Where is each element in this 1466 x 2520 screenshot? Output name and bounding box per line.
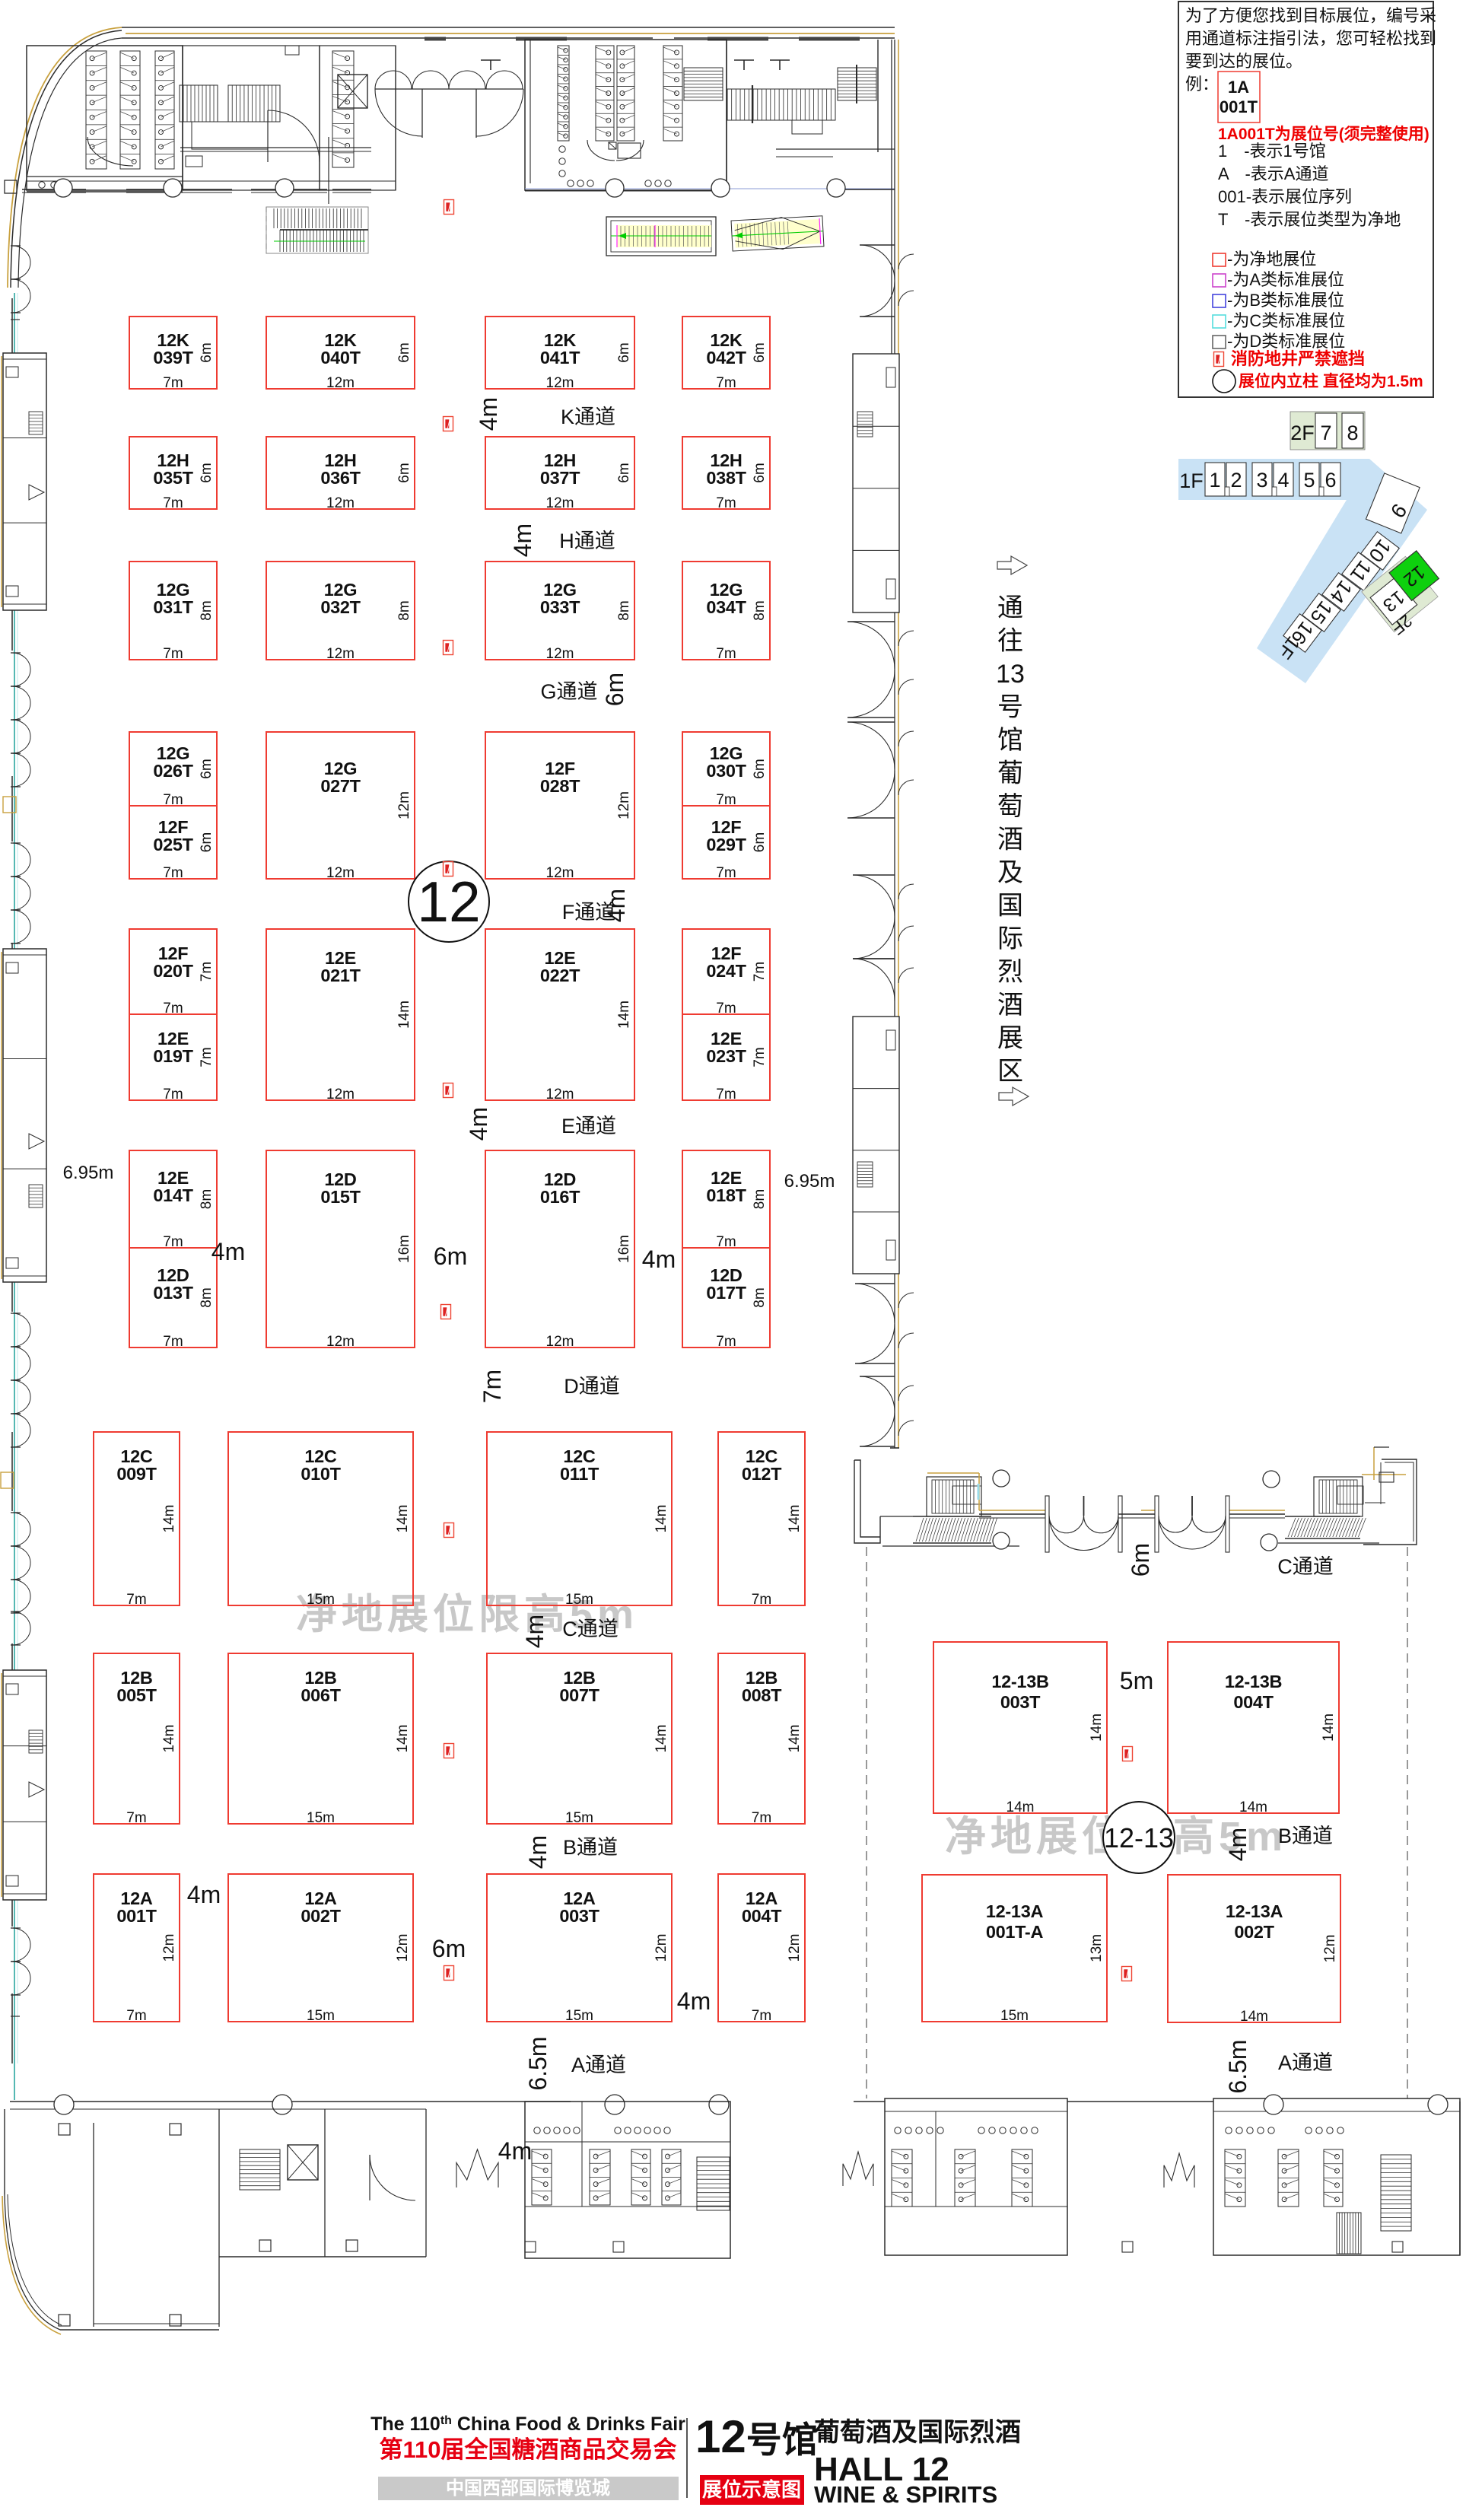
svg-text:消防地井严禁遮挡: 消防地井严禁遮挡 [1231,349,1365,368]
svg-text:12m: 12m [653,1934,669,1962]
svg-text:039T: 039T [153,348,193,367]
svg-text:6m: 6m [616,342,632,362]
svg-text:7m: 7m [163,1334,183,1350]
svg-text:G通道: G通道 [540,680,597,703]
svg-text:032T: 032T [320,597,361,617]
svg-text:021T: 021T [320,966,361,985]
svg-text:12m: 12m [546,1334,574,1350]
svg-text:T -表示展位类型为净地: T -表示展位类型为净地 [1218,210,1401,229]
svg-text:展位内立柱 直径均为1.5m: 展位内立柱 直径均为1.5m [1239,372,1423,390]
svg-text:7m: 7m [752,1810,771,1826]
svg-text:025T: 025T [153,835,193,854]
svg-text:022T: 022T [540,966,580,985]
svg-text:-为D类标准展位: -为D类标准展位 [1227,332,1345,351]
svg-text:029T: 029T [706,835,746,854]
svg-text:14m: 14m [161,1725,177,1753]
svg-text:8m: 8m [616,600,632,620]
svg-text:7m: 7m [716,1087,736,1102]
svg-text:C通道: C通道 [562,1618,619,1640]
svg-text:区: 区 [997,1057,1023,1086]
svg-text:号: 号 [997,693,1023,722]
svg-text:酒: 酒 [997,991,1023,1020]
svg-text:034T: 034T [706,597,746,617]
svg-text:7m: 7m [163,1087,183,1102]
svg-text:7m: 7m [199,1047,215,1067]
svg-text:038T: 038T [706,468,746,488]
svg-text:14m: 14m [616,1001,632,1029]
svg-text:4m: 4m [465,1107,492,1141]
svg-text:040T: 040T [320,348,361,367]
svg-text:14m: 14m [395,1725,411,1753]
svg-text:6m: 6m [616,463,632,482]
svg-text:028T: 028T [540,776,580,796]
svg-text:14m: 14m [1240,2009,1268,2025]
svg-text:5m: 5m [1120,1667,1153,1694]
svg-text:4m: 4m [524,1835,552,1869]
svg-text:12-13A: 12-13A [1226,1901,1283,1921]
svg-text:15m: 15m [307,2008,335,2024]
svg-text:011T: 011T [560,1464,599,1484]
svg-text:12号馆: 12号馆 [695,2411,818,2462]
svg-text:12m: 12m [326,375,355,391]
svg-text:中国西部国际博览城: 中国西部国际博览城 [446,2477,610,2499]
svg-text:4: 4 [1277,469,1289,492]
svg-text:3: 3 [1256,469,1267,492]
svg-text:B通道: B通道 [563,1836,618,1859]
svg-text:15m: 15m [565,1592,593,1608]
svg-text:001-表示展位序列: 001-表示展位序列 [1218,187,1352,206]
svg-text:-为净地展位: -为净地展位 [1227,250,1316,269]
svg-text:15m: 15m [565,1810,593,1826]
svg-text:5: 5 [1303,469,1315,492]
svg-text:035T: 035T [153,468,193,488]
svg-text:030T: 030T [706,761,746,781]
svg-text:033T: 033T [540,597,580,617]
svg-text:B通道: B通道 [1278,1825,1333,1847]
svg-text:4m: 4m [187,1881,221,1908]
svg-text:009T: 009T [116,1464,157,1484]
svg-text:14m: 14m [653,1725,669,1753]
svg-text:12-13A: 12-13A [986,1901,1044,1921]
svg-text:002T: 002T [301,1906,341,1926]
svg-text:14m: 14m [1006,1799,1035,1815]
svg-text:12-13B: 12-13B [1225,1672,1282,1691]
svg-text:6m: 6m [396,342,412,362]
svg-text:6.95m: 6.95m [784,1171,835,1192]
svg-text:041T: 041T [540,348,580,367]
svg-text:14m: 14m [396,1001,412,1029]
svg-text:12m: 12m [396,791,412,819]
svg-text:031T: 031T [153,597,193,617]
svg-text:13: 13 [996,660,1025,689]
svg-text:6m: 6m [199,759,215,778]
svg-text:005T: 005T [116,1685,157,1705]
svg-text:013T: 013T [153,1283,193,1303]
svg-text:12m: 12m [546,495,574,511]
svg-text:14m: 14m [787,1505,803,1533]
svg-text:The 110th China Food & Drinks: The 110th China Food & Drinks Fair [370,2413,685,2435]
svg-text:002T: 002T [1234,1922,1274,1942]
svg-text:1F: 1F [1179,469,1204,492]
svg-text:1A001T为展位号(须完整使用): 1A001T为展位号(须完整使用) [1218,125,1429,143]
svg-text:14m: 14m [1321,1713,1337,1742]
svg-text:7m: 7m [716,1334,736,1350]
svg-text:7m: 7m [126,1592,146,1608]
svg-text:6: 6 [1324,469,1336,492]
svg-text:A通道: A通道 [1278,2051,1333,2074]
svg-text:008T: 008T [742,1685,782,1705]
svg-text:004T: 004T [1233,1692,1274,1712]
svg-text:6m: 6m [199,342,215,362]
svg-text:4m: 4m [211,1238,245,1265]
svg-text:006T: 006T [301,1685,341,1705]
svg-text:A -表示A通道: A -表示A通道 [1218,164,1328,183]
svg-text:葡萄酒及国际烈酒: 葡萄酒及国际烈酒 [814,2418,1021,2447]
svg-text:019T: 019T [153,1046,193,1066]
svg-text:016T: 016T [540,1187,580,1207]
svg-text:12m: 12m [326,1334,355,1350]
svg-text:015T: 015T [320,1187,361,1207]
svg-text:8m: 8m [199,1189,215,1209]
svg-text:7m: 7m [126,2008,146,2024]
svg-text:15m: 15m [307,1592,335,1608]
svg-text:馆: 馆 [997,726,1023,755]
svg-text:6m: 6m [1127,1543,1154,1577]
svg-text:7m: 7m [716,646,736,662]
svg-text:15m: 15m [565,2008,593,2024]
svg-text:001T-A: 001T-A [986,1922,1044,1942]
svg-text:6m: 6m [434,1242,467,1270]
svg-text:-为C类标准展位: -为C类标准展位 [1227,311,1345,330]
svg-text:为了方便您找到目标展位，编号采: 为了方便您找到目标展位，编号采 [1185,6,1436,25]
svg-text:037T: 037T [540,468,580,488]
svg-text:12m: 12m [546,646,574,662]
svg-text:8: 8 [1347,422,1358,444]
svg-text:H通道: H通道 [559,530,615,552]
svg-text:及: 及 [997,858,1023,887]
svg-text:8m: 8m [752,600,768,620]
svg-text:7m: 7m [479,1370,506,1403]
svg-text:4m: 4m [677,1987,711,2015]
svg-text:14m: 14m [1239,1799,1267,1815]
svg-text:6m: 6m [752,342,768,362]
svg-text:6m: 6m [752,759,768,778]
svg-text:8m: 8m [199,600,215,620]
svg-text:7m: 7m [752,1047,768,1067]
svg-text:4m: 4m [603,889,630,922]
svg-text:001T: 001T [116,1906,157,1926]
svg-text:010T: 010T [301,1464,341,1484]
svg-text:7m: 7m [752,1592,771,1608]
svg-text:16m: 16m [396,1235,412,1263]
svg-text:12m: 12m [616,791,632,819]
svg-text:6m: 6m [752,832,768,852]
svg-text:026T: 026T [153,761,193,781]
svg-text:014T: 014T [153,1185,193,1205]
svg-text:萄: 萄 [997,792,1023,821]
svg-text:12m: 12m [326,646,355,662]
svg-text:往: 往 [997,627,1023,656]
svg-text:012T: 012T [742,1464,782,1484]
svg-text:036T: 036T [320,468,361,488]
svg-text:WINE & SPIRITS: WINE & SPIRITS [814,2481,997,2508]
svg-text:7m: 7m [199,962,215,982]
svg-text:12m: 12m [787,1934,803,1962]
svg-text:烈: 烈 [997,958,1023,987]
svg-text:4m: 4m [509,523,536,557]
svg-text:7m: 7m [752,2008,771,2024]
svg-text:1A: 1A [1228,78,1249,97]
svg-text:7m: 7m [163,495,183,511]
svg-text:1: 1 [1209,469,1220,492]
svg-text:E通道: E通道 [561,1115,616,1137]
svg-text:葡: 葡 [997,759,1023,788]
svg-text:12m: 12m [395,1934,411,1962]
svg-text:D通道: D通道 [564,1375,620,1398]
svg-text:12m: 12m [326,495,355,511]
svg-text:003T: 003T [1000,1692,1041,1712]
svg-text:4m: 4m [498,2137,532,2165]
svg-text:6m: 6m [432,1935,466,1962]
svg-text:用通道标注指引法，您可轻松找到: 用通道标注指引法，您可轻松找到 [1185,29,1436,48]
svg-text:14m: 14m [787,1725,803,1753]
svg-text:7m: 7m [163,865,183,881]
svg-text:第110届全国糖酒商品交易会: 第110届全国糖酒商品交易会 [379,2436,676,2463]
svg-text:4m: 4m [521,1615,549,1648]
svg-text:8m: 8m [199,1287,215,1307]
svg-text:018T: 018T [706,1185,746,1205]
svg-text:际: 际 [997,924,1023,953]
svg-text:7m: 7m [752,962,768,982]
svg-text:007T: 007T [559,1685,599,1705]
svg-text:例：: 例： [1185,75,1219,94]
svg-text:通: 通 [997,593,1023,622]
svg-text:001T: 001T [1220,97,1258,116]
svg-text:A通道: A通道 [571,2054,626,2076]
svg-text:042T: 042T [706,348,746,367]
svg-text:7m: 7m [716,865,736,881]
svg-text:6m: 6m [752,463,768,482]
svg-text:C通道: C通道 [1277,1555,1334,1578]
svg-text:027T: 027T [320,776,361,796]
svg-text:4m: 4m [1224,1828,1251,1861]
svg-text:酒: 酒 [997,826,1023,854]
svg-text:14m: 14m [395,1505,411,1533]
svg-text:8m: 8m [752,1287,768,1307]
svg-text:6.5m: 6.5m [1224,2039,1251,2093]
svg-text:4m: 4m [475,397,502,431]
svg-text:12m: 12m [546,375,574,391]
svg-text:023T: 023T [706,1046,746,1066]
svg-text:7m: 7m [126,1810,146,1826]
svg-text:12-13: 12-13 [1104,1822,1174,1853]
svg-text:004T: 004T [742,1906,782,1926]
svg-text:6m: 6m [396,463,412,482]
svg-text:7: 7 [1320,422,1331,444]
svg-text:12m: 12m [161,1934,177,1962]
svg-text:15m: 15m [307,1810,335,1826]
svg-text:12m: 12m [326,1087,355,1102]
svg-text:7m: 7m [163,375,183,391]
svg-text:2F: 2F [1290,422,1315,444]
svg-text:024T: 024T [706,961,746,981]
svg-text:国: 国 [997,892,1023,921]
svg-text:展位示意图: 展位示意图 [702,2478,801,2501]
svg-text:12m: 12m [1322,1935,1338,1963]
svg-text:16m: 16m [616,1235,632,1263]
svg-text:-为B类标准展位: -为B类标准展位 [1227,291,1344,310]
svg-text:6m: 6m [199,463,215,482]
svg-text:2: 2 [1230,469,1242,492]
svg-text:6m: 6m [601,673,628,706]
svg-text:12m: 12m [326,865,355,881]
svg-text:15m: 15m [1000,2008,1029,2024]
svg-text:8m: 8m [396,600,412,620]
svg-text:14m: 14m [1089,1713,1105,1742]
svg-text:6.5m: 6.5m [524,2036,552,2090]
svg-text:-为A类标准展位: -为A类标准展位 [1227,270,1344,289]
svg-text:12: 12 [417,870,480,934]
svg-text:12m: 12m [546,1087,574,1102]
svg-text:12m: 12m [546,865,574,881]
svg-text:6m: 6m [199,832,215,852]
svg-text:展: 展 [997,1024,1023,1053]
svg-text:7m: 7m [716,495,736,511]
svg-text:12-13B: 12-13B [991,1672,1048,1691]
svg-text:003T: 003T [559,1906,599,1926]
svg-text:要到达的展位。: 要到达的展位。 [1185,52,1302,71]
svg-text:7m: 7m [716,375,736,391]
svg-text:1 -表示1号馆: 1 -表示1号馆 [1218,142,1326,161]
svg-text:017T: 017T [706,1283,746,1303]
svg-text:K通道: K通道 [561,406,615,428]
svg-text:13m: 13m [1089,1934,1105,1962]
svg-text:8m: 8m [752,1189,768,1209]
svg-text:4m: 4m [642,1246,676,1273]
svg-text:6.95m: 6.95m [63,1163,114,1183]
svg-text:14m: 14m [161,1505,177,1533]
svg-text:7m: 7m [163,646,183,662]
svg-text:020T: 020T [153,961,193,981]
svg-text:14m: 14m [653,1505,669,1533]
